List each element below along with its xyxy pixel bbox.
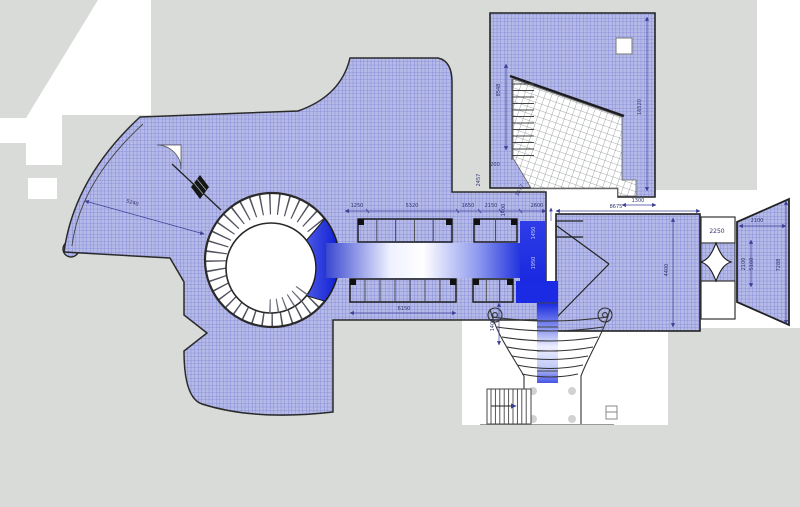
- backdrop-right-lower: [668, 328, 800, 428]
- dim-hall-notch: 1300: [632, 198, 645, 204]
- rotunda-inner-wall: [226, 223, 316, 313]
- dim-corridor-3: 1650: [462, 203, 475, 209]
- window-band-bottom-a: [350, 279, 456, 302]
- window-band-top-b: [474, 219, 517, 242]
- dim-corridor-6: 2600: [531, 203, 544, 209]
- spiral-staircase: [205, 193, 339, 327]
- dim-portal-v2: 5160: [749, 258, 755, 271]
- dim-portal-height: 7288: [776, 259, 782, 272]
- straight-stair: [487, 389, 531, 424]
- stair-ramp-block: [516, 281, 558, 303]
- corridor: 1250 5320 1650 2150 1400 2600 6150 1450 …: [326, 203, 546, 313]
- site-notch-small: [28, 178, 57, 199]
- dim-corridor-4: 2150: [485, 203, 498, 209]
- portal-box-lower: [701, 281, 735, 319]
- dim-hall-depth: 4400: [664, 264, 670, 277]
- window-band-bottom-b: [473, 279, 513, 302]
- dim-vestibule-2: 1950: [531, 257, 537, 270]
- dim-portal-box: 2250: [709, 228, 724, 235]
- floor-plan-canvas: 5240: [0, 0, 800, 507]
- east-hall: 8675 1300 4400: [551, 198, 700, 331]
- wall-detail-boxes: [606, 406, 617, 419]
- dim-building-left: 8548: [496, 84, 502, 97]
- dim-building-right: 16520: [637, 99, 643, 115]
- dim-corridor-bottom: 6150: [398, 306, 411, 312]
- window-band-top-a: [358, 219, 452, 242]
- dim-portal-top: 2100: [751, 218, 764, 224]
- dim-building-side: 2457: [476, 174, 482, 187]
- dim-corridor-1: 1250: [351, 203, 364, 209]
- east-hall-hatch: [556, 214, 700, 331]
- site-notch-left-edge: [0, 118, 27, 143]
- dim-corridor-5: 1400: [501, 204, 507, 217]
- dim-corridor-2: 5320: [406, 203, 419, 209]
- corridor-gradient-floor: [326, 243, 520, 278]
- dim-vestibule-1: 1450: [531, 227, 537, 240]
- shaft-box: [616, 38, 632, 54]
- dim-portal-v1: 2100: [741, 258, 747, 271]
- north-building: 8548 16520 200 2457 3677: [476, 13, 655, 198]
- floor-plan-drawing: 5240: [0, 0, 800, 507]
- dim-hall-width: 8675: [610, 204, 623, 210]
- east-portal: 2250 2100 2100 5160 7288: [701, 199, 789, 325]
- dim-building-small: 200: [490, 162, 500, 168]
- dim-south-stair: 1400: [490, 319, 496, 332]
- backdrop-bottom: [0, 425, 800, 507]
